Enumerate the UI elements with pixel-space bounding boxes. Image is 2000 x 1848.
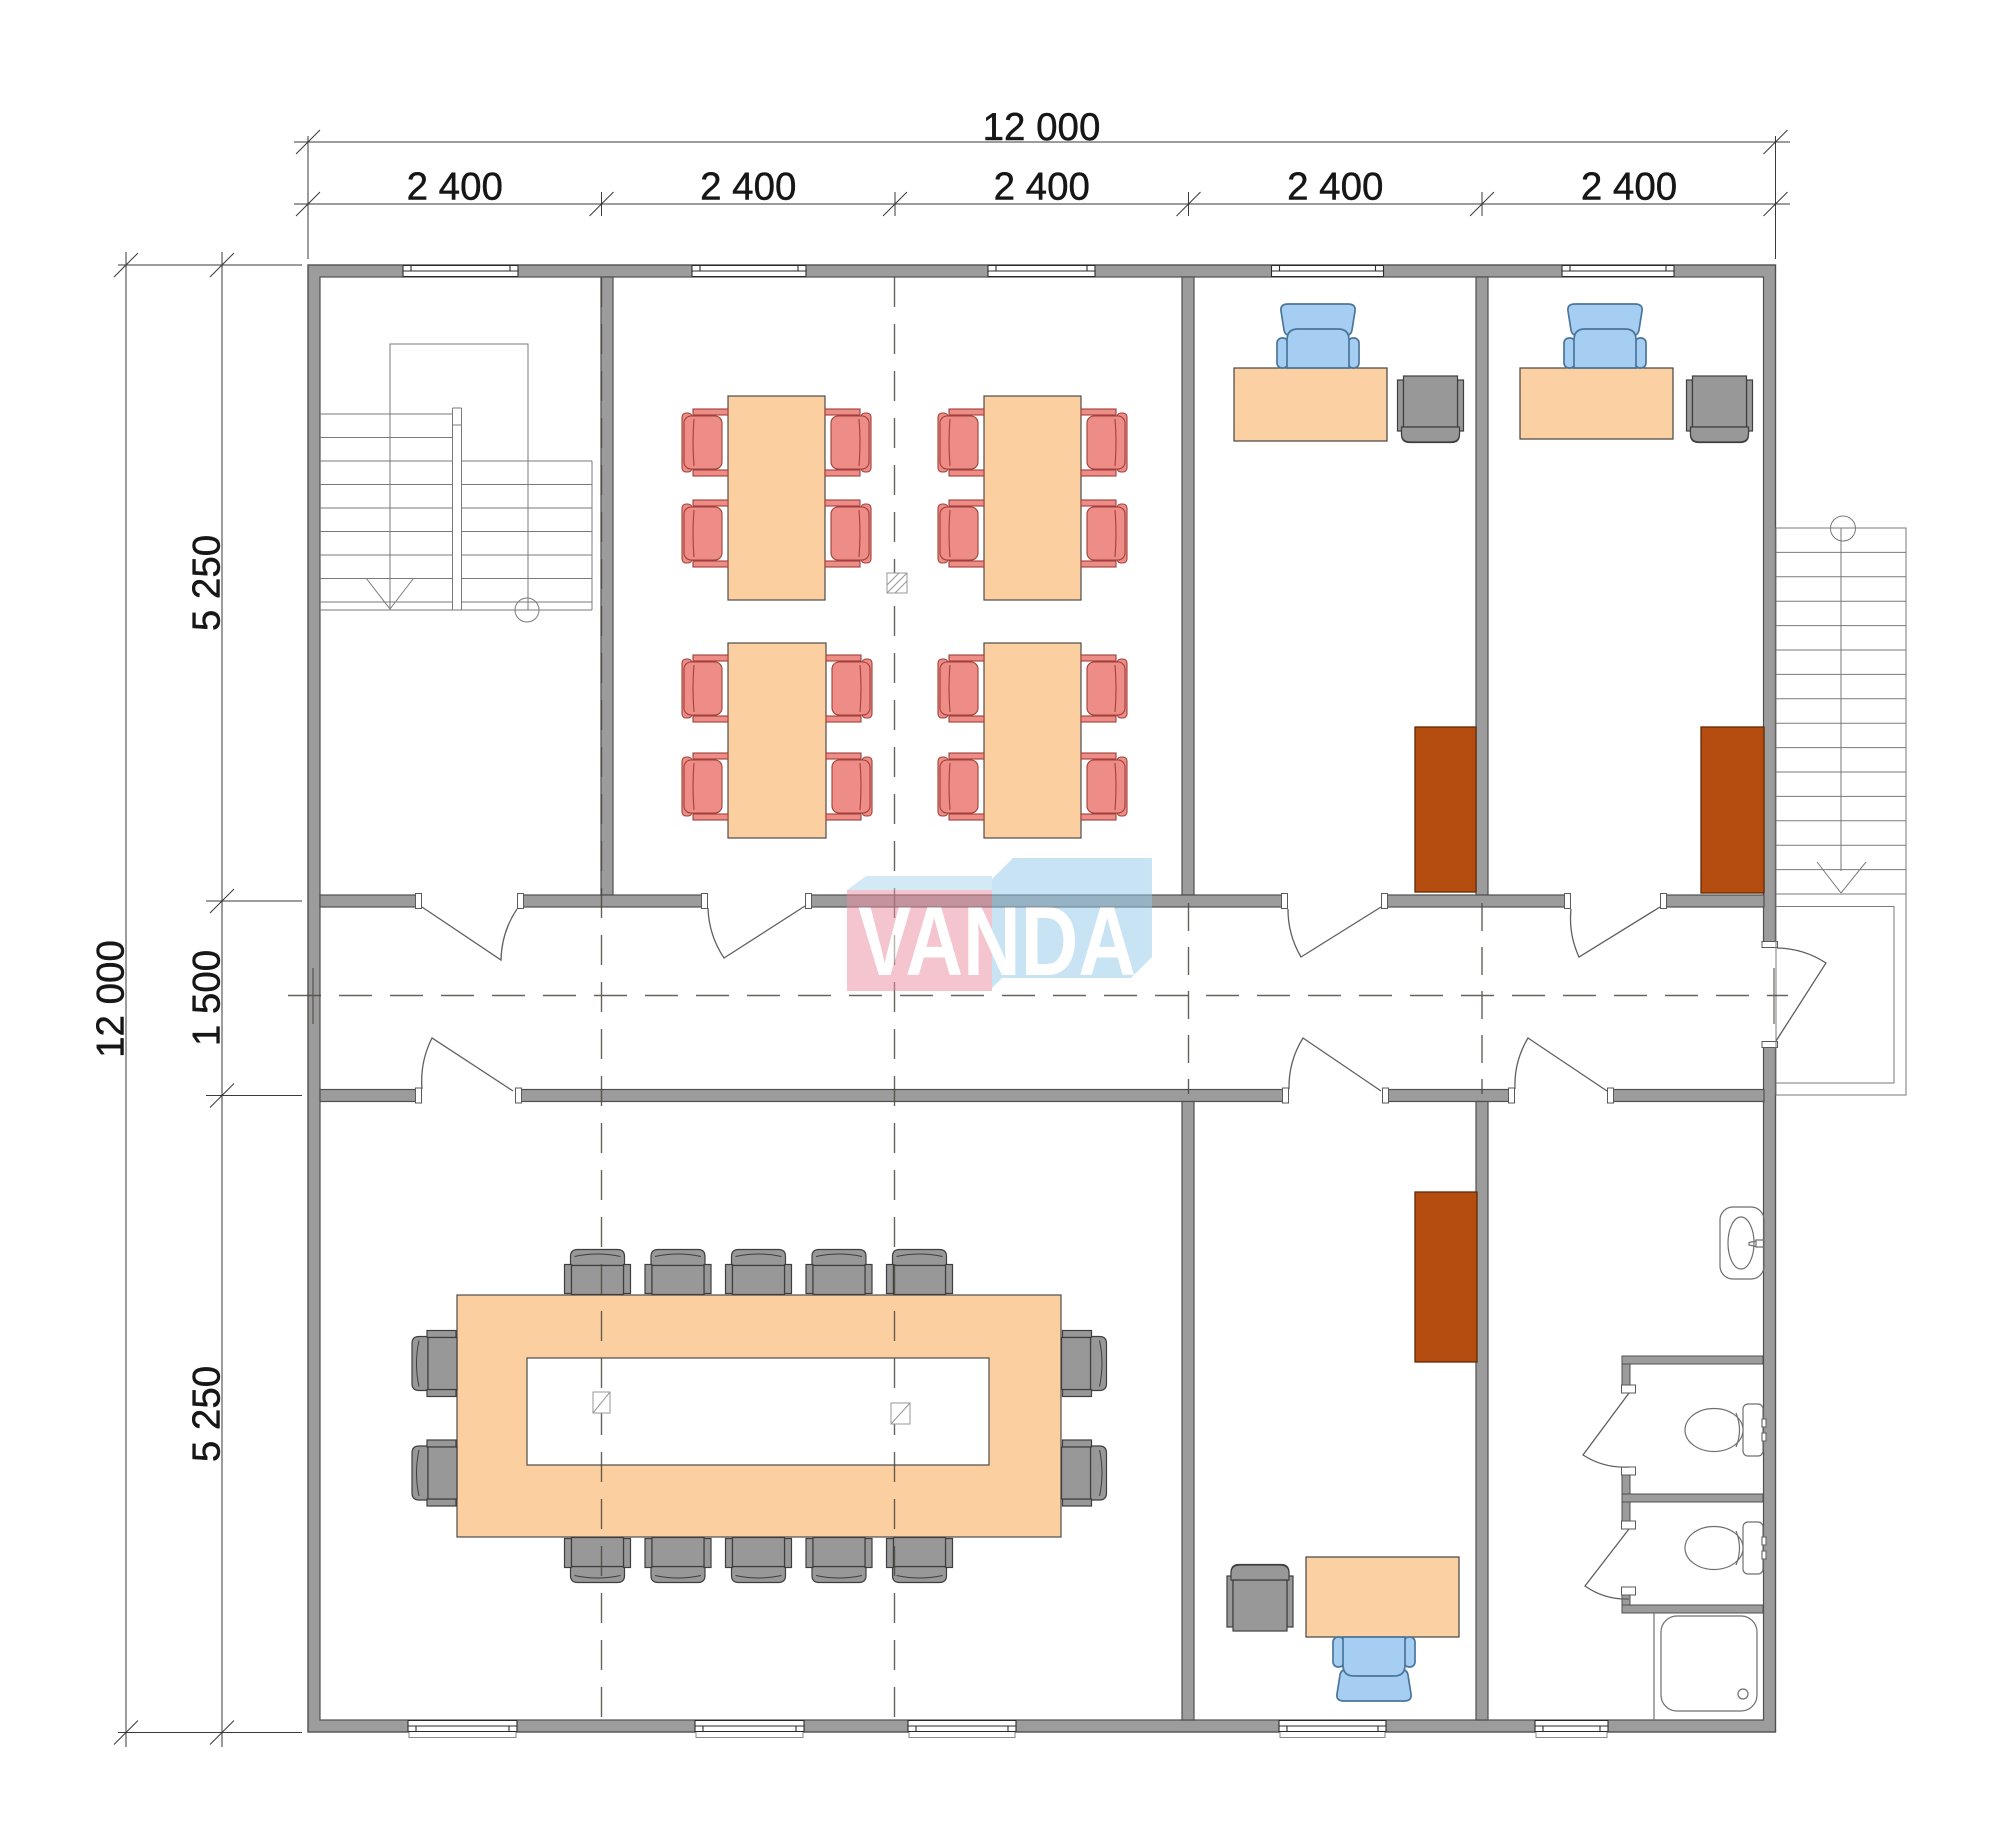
svg-text:5 250: 5 250: [186, 535, 229, 631]
svg-text:5 250: 5 250: [186, 1366, 229, 1462]
svg-text:12 000: 12 000: [983, 106, 1101, 149]
svg-text:VANDA: VANDA: [858, 886, 1136, 996]
svg-text:12 000: 12 000: [90, 940, 133, 1058]
svg-text:2 400: 2 400: [994, 166, 1090, 209]
svg-text:2 400: 2 400: [1581, 166, 1677, 209]
svg-text:2 400: 2 400: [700, 166, 796, 209]
svg-text:2 400: 2 400: [407, 166, 503, 209]
svg-text:2 400: 2 400: [1287, 166, 1383, 209]
svg-text:1 500: 1 500: [186, 950, 229, 1046]
